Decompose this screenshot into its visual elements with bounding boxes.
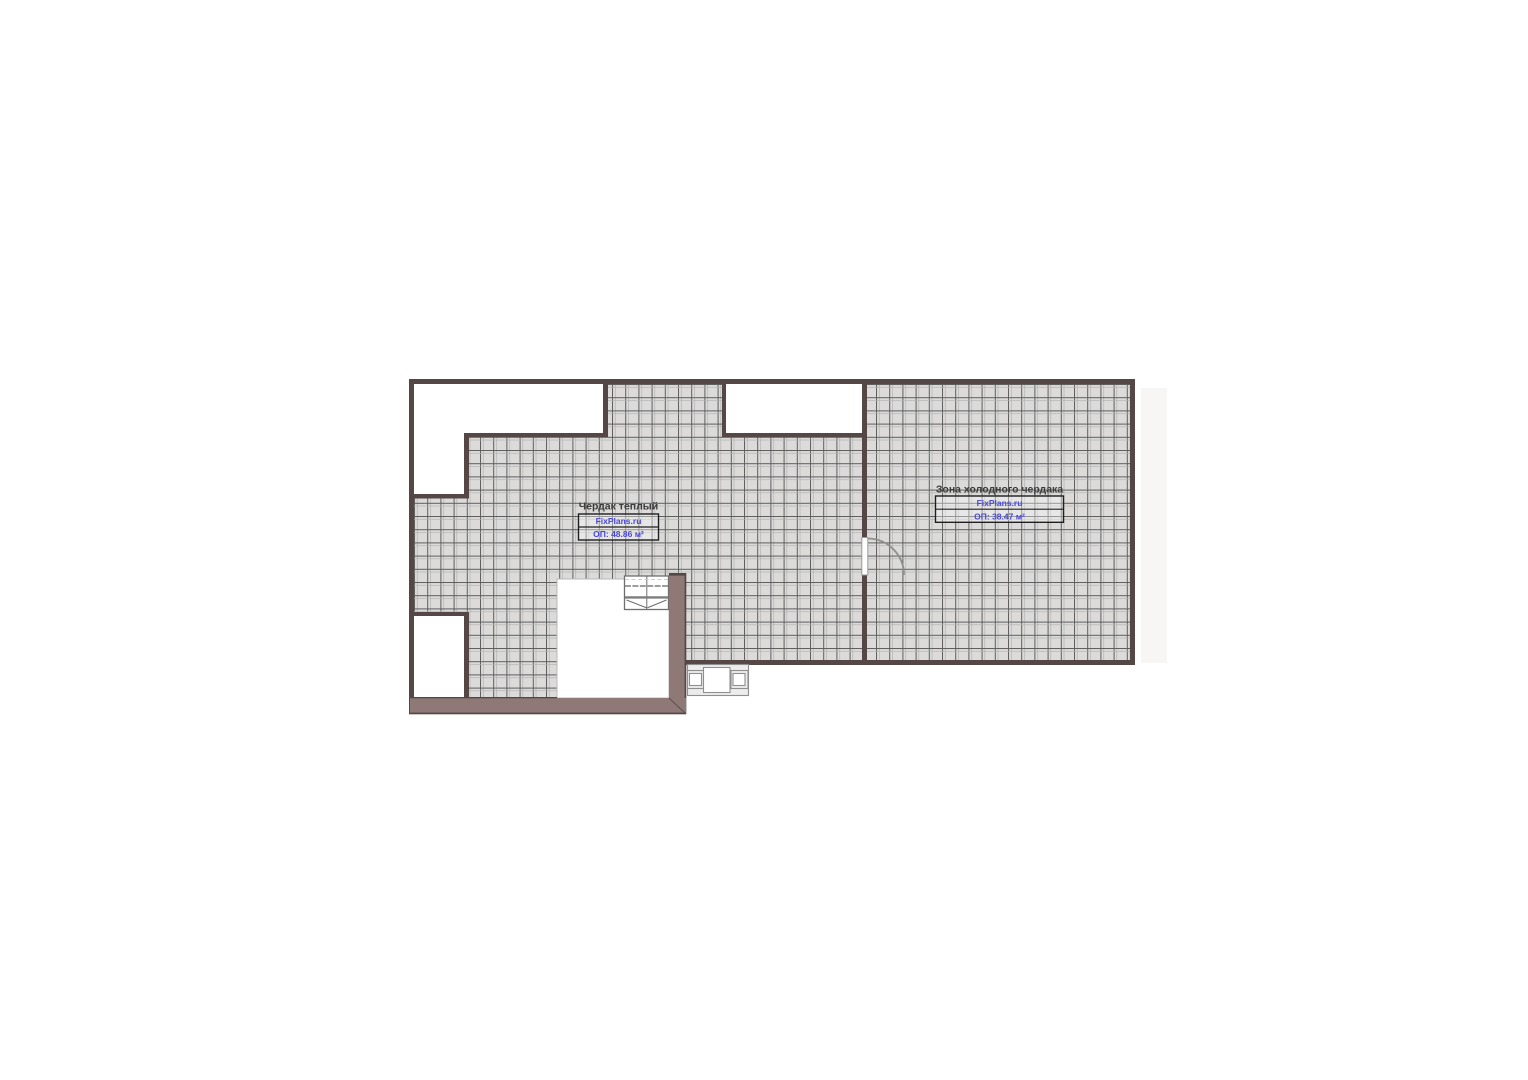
svg-text:Зона холодного чердака: Зона холодного чердака (936, 484, 1063, 496)
svg-text:FixPlans.ru: FixPlans.ru (977, 498, 1023, 508)
svg-text:FixPlans.ru: FixPlans.ru (596, 516, 642, 526)
svg-text:Чердак теплый: Чердак теплый (579, 501, 658, 513)
svg-text:ОП: 38.47 м²: ОП: 38.47 м² (974, 511, 1025, 521)
svg-text:ОП: 48.86 м²: ОП: 48.86 м² (593, 529, 644, 539)
